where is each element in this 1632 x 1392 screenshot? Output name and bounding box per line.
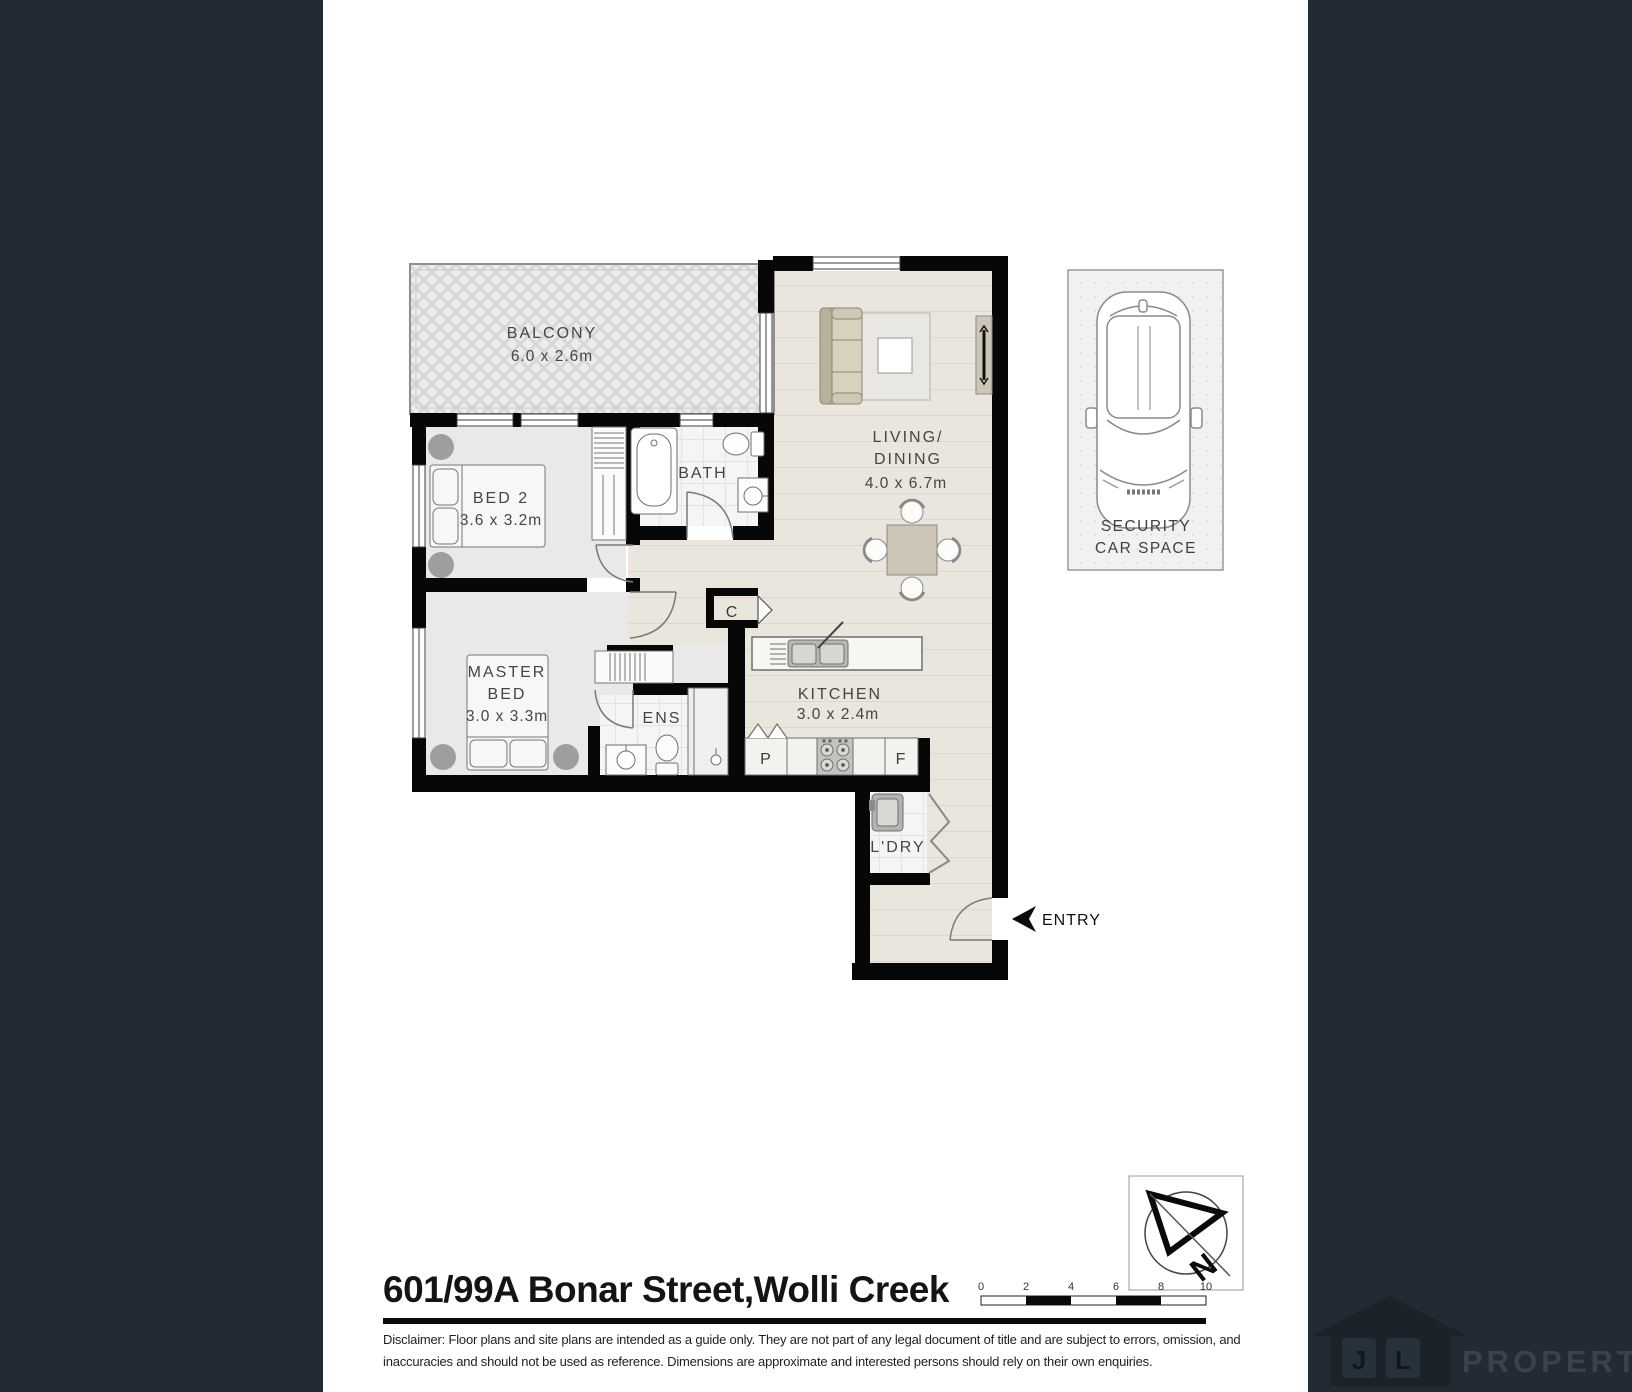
balcony-dims: 6.0 x 2.6m [511,348,593,365]
bath-label: BATH [678,465,727,482]
compass: N [1129,1176,1243,1290]
master-pillow [470,740,507,767]
disclaimer-line-1: Disclaimer: Floor plans and site plans a… [383,1332,1240,1347]
bath-vanity [738,478,768,512]
bed2-pillow [433,508,458,544]
window-bath [680,414,713,426]
title-divider [383,1318,1206,1324]
stove-icon [817,738,853,775]
closet-marker: C [726,604,739,621]
bed2-pillow [433,469,458,505]
ens-label: ENS [643,710,682,727]
scale-tick-2: 2 [1023,1281,1029,1293]
scale-tick-0: 0 [978,1281,984,1293]
window-master-left [413,628,425,738]
kitchen-dims: 3.0 x 2.4m [797,706,879,723]
logo-word: PROPERTY [1462,1344,1632,1379]
scale-tick-4: 4 [1068,1281,1074,1293]
car-space-label-2: CAR SPACE [1095,540,1197,557]
master-pillow [510,740,546,767]
bed2-wardrobe [592,427,626,540]
rug-inner [878,338,912,373]
bed2-side-table [428,552,454,578]
master-side-table [553,744,579,770]
car-icon [1086,292,1202,528]
logo-letter-j: J [1352,1345,1366,1375]
bed2-label: BED 2 [473,490,529,507]
ens-shower [688,688,728,775]
pantry-marker: P [760,751,772,768]
scale-tick-10: 10 [1200,1281,1212,1293]
living-label-2: DINING [874,451,942,468]
entry-label: ENTRY [1042,912,1101,929]
window-balcony-bed2-b [521,414,578,426]
tv-unit [976,316,992,394]
bed2-dims: 3.6 x 3.2m [460,512,542,529]
master-dims: 3.0 x 3.3m [466,708,548,725]
right-sidebar-panel [1308,0,1632,1392]
window-bed2-left [413,465,425,547]
living-label-1: LIVING/ [873,429,944,446]
bed2-side-table [428,434,454,460]
logo-letter-l: L [1395,1345,1411,1375]
ens-toilet [656,735,678,761]
bath-toilet [723,432,764,456]
scale-tick-8: 8 [1158,1281,1164,1293]
window-living-top [813,257,900,269]
laundry-label: L'DRY [870,839,925,856]
sofa [820,308,862,404]
page-title: 601/99A Bonar Street,Wolli Creek [383,1269,950,1310]
master-label-1: MASTER [468,664,547,681]
left-sidebar-panel [0,0,323,1392]
master-label-2: BED [488,686,527,703]
dining-table [887,525,937,575]
master-side-table [430,744,456,770]
bathtub [631,428,677,514]
master-robe [595,651,673,683]
car-space-label-1: SECURITY [1101,518,1191,535]
living-dims: 4.0 x 6.7m [865,475,947,492]
window-balcony-bed2-a [457,414,513,426]
car-space: SECURITY CAR SPACE [1068,270,1223,570]
disclaimer-line-2: inaccuracies and should not be used as r… [383,1354,1152,1369]
kitchen-label: KITCHEN [798,686,882,703]
balcony-label: BALCONY [507,325,597,342]
scale-tick-6: 6 [1113,1281,1119,1293]
window-balcony-living [760,313,772,413]
fridge-marker: F [896,751,907,768]
floorplan-canvas: BALCONY 6.0 x 2.6m LIVING/ DINING 4.0 x … [0,0,1632,1392]
